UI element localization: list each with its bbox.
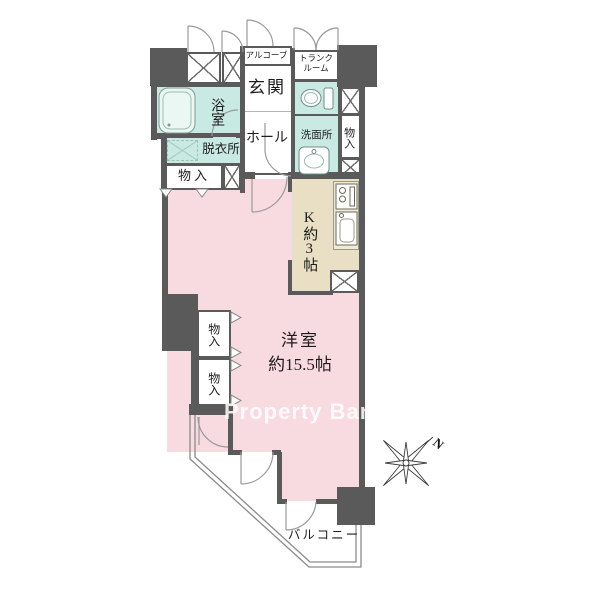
label-storage-1: 物入 xyxy=(206,317,220,353)
wall xyxy=(228,450,242,455)
label-balcony: バルコニー xyxy=(268,528,380,542)
label-dressing: 脱衣所 xyxy=(198,142,244,156)
wall xyxy=(191,348,197,406)
pipe-space-icon xyxy=(223,164,241,190)
wall xyxy=(288,260,292,295)
room-toilet xyxy=(293,80,340,116)
wall xyxy=(151,82,244,87)
label-storage-row: 物入 xyxy=(165,169,223,184)
wall xyxy=(277,452,282,504)
compass-north-label: N xyxy=(430,435,447,453)
label-kitchen: K約3帖 xyxy=(300,198,317,284)
label-bath: 浴室 xyxy=(208,91,224,133)
wall xyxy=(240,46,245,193)
label-main-room-size: 約15.5帖 xyxy=(240,355,360,375)
wall xyxy=(243,172,255,179)
kitchen-counter xyxy=(333,181,359,250)
watermark: Property Bank xyxy=(224,399,387,425)
pipe-space-icon xyxy=(340,87,361,115)
wall xyxy=(155,133,213,138)
label-main-room-name: 洋室 xyxy=(240,331,360,351)
wall xyxy=(162,188,168,296)
label-washroom: 洗面所 xyxy=(293,130,340,142)
wall xyxy=(151,83,157,140)
meter-box-icon xyxy=(186,52,221,84)
wall xyxy=(316,499,338,504)
label-trunk: トランクルーム xyxy=(296,54,336,74)
label-storage-2: 物入 xyxy=(206,366,220,402)
wall xyxy=(288,179,292,192)
label-hall: ホール xyxy=(240,131,294,147)
wall xyxy=(277,499,287,504)
compass-icon xyxy=(381,437,433,488)
pillar xyxy=(337,45,377,87)
washer-space-icon xyxy=(167,140,198,161)
pillar xyxy=(150,48,187,86)
room-washroom xyxy=(293,114,340,178)
wall xyxy=(288,172,364,179)
wall xyxy=(359,87,365,488)
wall xyxy=(288,291,333,295)
label-entrance: 玄関 xyxy=(241,78,293,98)
pipe-space-icon xyxy=(330,270,359,293)
room-bath xyxy=(153,85,243,135)
pillar xyxy=(162,294,198,351)
label-alcove: アルコーブ xyxy=(241,51,292,61)
label-storage-right: 物入 xyxy=(342,118,355,158)
pillar xyxy=(337,487,375,525)
floorplan: N アルコーブ トランクルーム 玄関 ホール 浴室 脱衣所 洗面所 物入 物入 … xyxy=(0,0,600,600)
